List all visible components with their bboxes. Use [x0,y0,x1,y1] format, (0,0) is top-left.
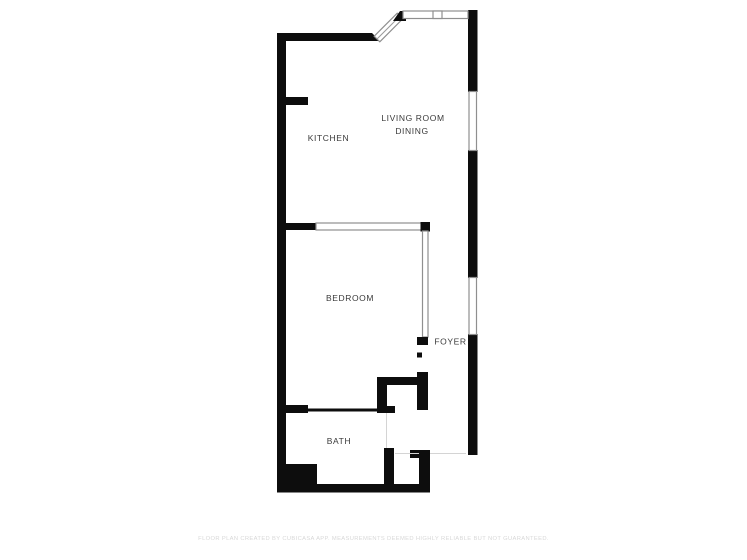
wall-bedroom-top [286,223,316,230]
wall-left [277,33,286,492]
bedroom-glass-partition-horizontal [316,223,422,230]
room-label-kitchen: KITCHEN [308,133,350,143]
wall-mass-bath-corner [277,464,317,486]
floor-plan-image: KITCHEN LIVING ROOM DINING BEDROOM FOYER… [0,0,747,560]
wall-bath-top-thick [277,405,308,413]
room-label-living-room: LIVING ROOM [381,113,444,123]
room-label-bedroom: BEDROOM [326,293,374,303]
bay-window [374,11,468,42]
wall-bath-top-thin [306,409,385,412]
wall-bath-right [384,448,394,488]
wall-closet-left-nub [387,406,395,413]
window-top-divider [433,11,442,19]
wall-top [278,33,372,41]
wall-right-upper [468,10,478,92]
window-foyer [469,278,477,335]
room-labels: KITCHEN LIVING ROOM DINING BEDROOM FOYER… [308,113,467,446]
bedroom-door-hinge-dot [417,353,422,358]
wall-kitchen-stub [286,97,308,105]
room-label-dining: DINING [395,126,428,136]
opening-lines [387,413,467,454]
room-label-bath: BATH [327,436,351,446]
window-living-room [469,92,477,151]
room-label-foyer: FOYER [434,337,466,347]
bedroom-glass-partition-vertical [423,231,429,337]
wall-closet-left [377,377,387,413]
exterior-walls [277,10,478,493]
disclaimer-text: FLOOR PLAN CREATED BY CUBICASA APP. MEAS… [198,536,549,542]
bedroom-door-post-top [417,337,428,345]
wall-right-lower [468,334,478,455]
wall-right-middle [468,150,478,278]
floor-plan-page: KITCHEN LIVING ROOM DINING BEDROOM FOYER… [0,0,747,560]
bedroom-partition-post [421,222,431,232]
